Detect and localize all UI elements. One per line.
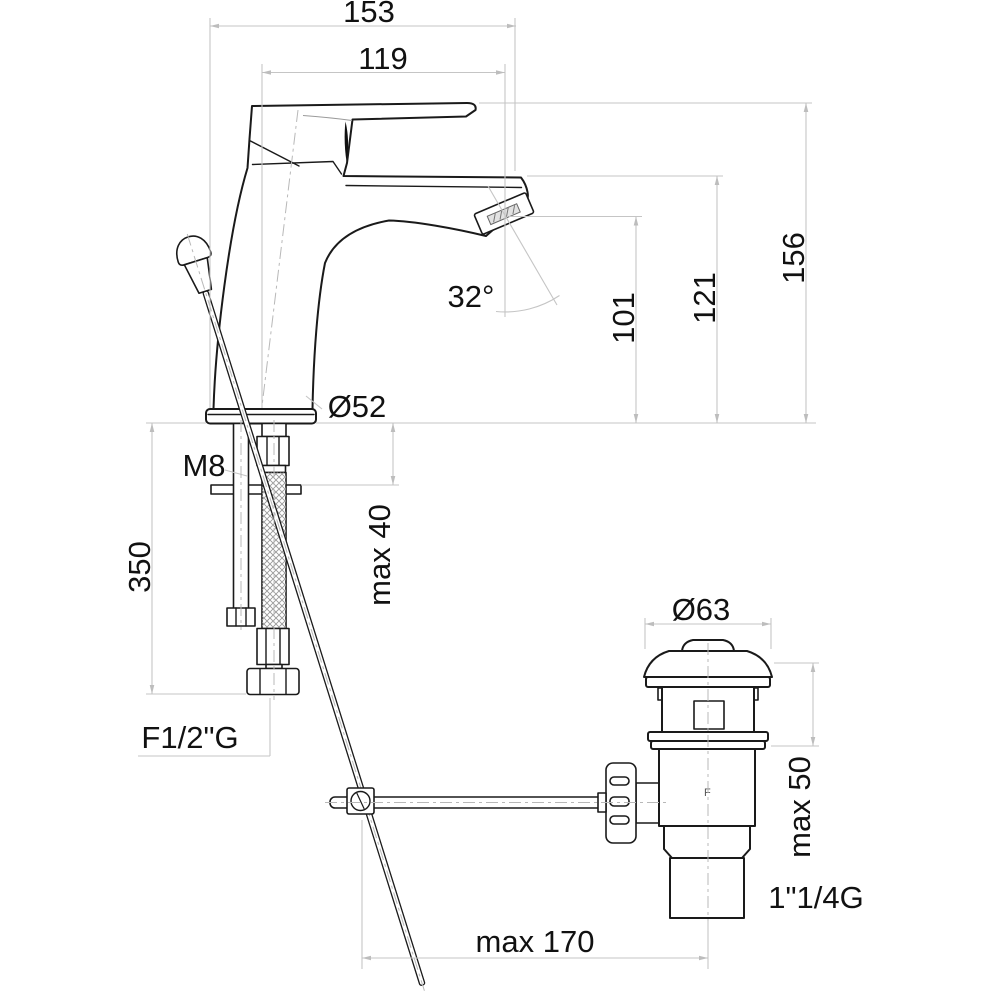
hose-end-nut xyxy=(247,669,299,695)
dim-hose-length-label: 350 xyxy=(122,541,157,593)
dim-outlet-angle-label: 32° xyxy=(448,279,495,314)
linkage-clamp xyxy=(347,788,374,814)
dim-rod-reach-label: max 170 xyxy=(476,924,595,959)
mounting-bracket xyxy=(211,485,301,494)
dim-outlet-height-label: 101 xyxy=(606,292,641,344)
dim-overall-width-label: 153 xyxy=(343,0,395,29)
drain-thread-section xyxy=(664,826,750,858)
dim-deck-thickness-label: max 40 xyxy=(362,504,397,606)
technical-drawing-page: F xyxy=(0,0,992,992)
dim-body-diameter-label: Ø52 xyxy=(328,389,387,424)
dim-overall-height-label: 156 xyxy=(776,232,811,284)
faucet-body xyxy=(214,103,528,409)
dim-spout-height-label: 121 xyxy=(687,272,722,324)
drain-overflow-window xyxy=(694,701,724,729)
dim-hose-nut-thread-label: F1/2"G xyxy=(141,720,238,755)
dim-fixing-thread-label: M8 xyxy=(182,448,225,483)
pop-up-drain: F xyxy=(598,640,772,918)
base-plate xyxy=(206,409,316,424)
dim-basin-thickness-label: max 50 xyxy=(782,756,817,858)
drain-tailpipe xyxy=(670,858,744,918)
dim-waste-diameter-label: Ø63 xyxy=(672,592,731,627)
dim-spout-reach-label: 119 xyxy=(358,41,407,76)
faucet-technical-drawing: F xyxy=(0,0,992,992)
dim-waste-thread-label: 1"1/4G xyxy=(768,880,863,915)
